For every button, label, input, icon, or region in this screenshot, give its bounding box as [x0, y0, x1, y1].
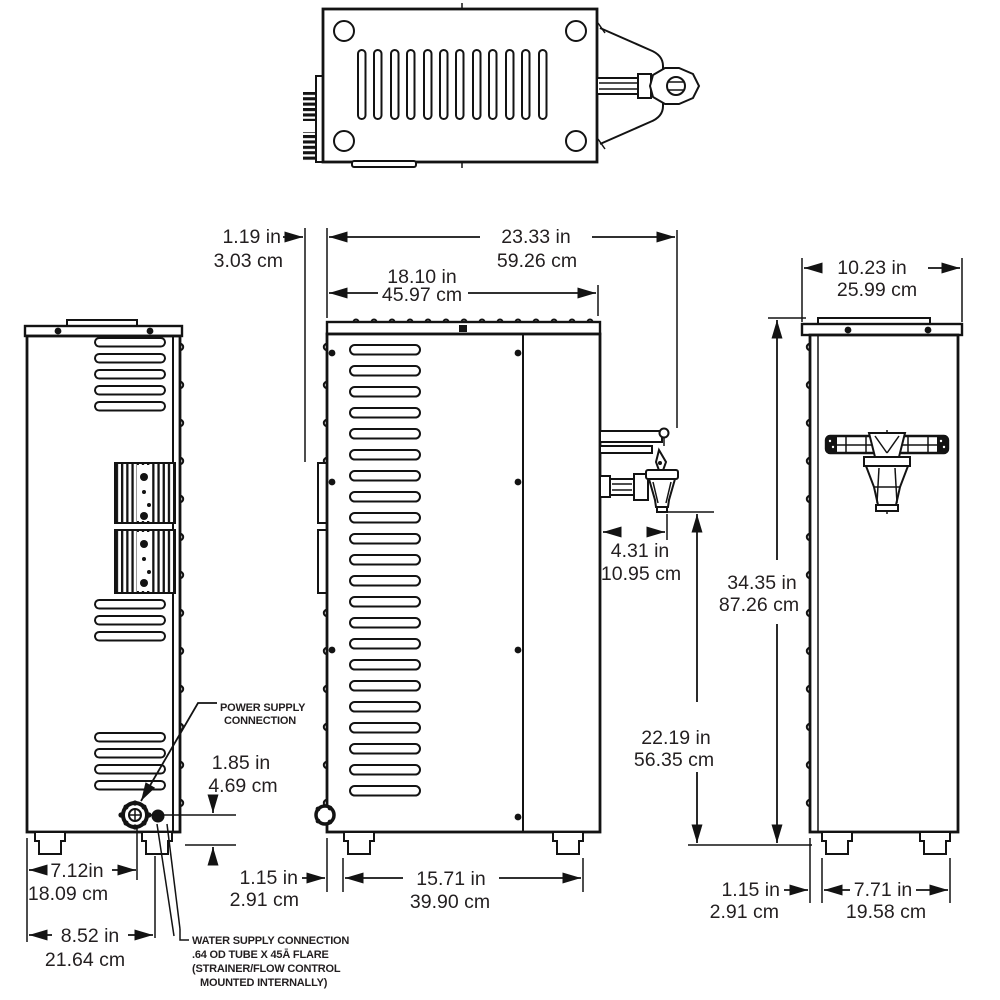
dim-power-conn-height-cm: 4.69 cm	[208, 775, 277, 797]
side-foot-right	[553, 832, 583, 854]
dim-power-conn-height-in: 1.85 in	[212, 752, 271, 774]
dim-power-conn-offset-cm: 18.09 cm	[28, 883, 108, 905]
dim-side-foot-span-in: 15.71 in	[416, 868, 485, 890]
side-view	[316, 320, 678, 855]
dim-top-inset-cm: 3.03 cm	[214, 250, 283, 272]
top-view	[303, 3, 699, 168]
rear-fins-lower	[303, 132, 317, 161]
water-leader-elbow	[180, 929, 189, 940]
water-note-line4: MOUNTED INTERNALLY)	[200, 977, 328, 989]
power-note-line1: POWER SUPPLY	[220, 702, 306, 714]
side-foot-left	[344, 832, 374, 854]
valve-body	[869, 433, 905, 457]
dim-faucet-reach-in: 4.31 in	[611, 540, 670, 562]
dim-front-width-in: 10.23 in	[837, 257, 906, 279]
dim-side-foot-span: 15.71 in 39.90 cm	[345, 868, 581, 913]
dim-side-foot-inset-in: 1.15 in	[239, 867, 298, 889]
drawing-canvas: 1.19 in 3.03 cm 23.33 in 59.26 cm 18.10 …	[0, 0, 1000, 1000]
rear-fins-upper	[303, 92, 317, 121]
dim-side-foot-span-cm: 39.90 cm	[410, 891, 490, 913]
handle-end-left	[827, 437, 837, 452]
dim-front-width: 10.23 in 25.99 cm	[804, 257, 960, 301]
dim-top-inset-in: 1.19 in	[222, 226, 281, 248]
dim-power-conn-offset-in: 7.12in	[50, 860, 103, 882]
power-note-line2: CONNECTION	[224, 715, 296, 727]
dim-overall-depth: 23.33 in 59.26 cm	[329, 226, 675, 272]
rear-view	[25, 320, 183, 854]
dim-front-foot-inset: 1.15 in 2.91 cm	[710, 879, 808, 923]
water-note-line3: (STRAINER/FLOW CONTROL	[192, 963, 341, 975]
faucet-top	[597, 68, 699, 104]
dim-spout-height-cm: 56.35 cm	[634, 749, 714, 771]
front-view	[802, 318, 962, 854]
water-note-line2: .64 OD TUBE X 45Ā FLARE	[192, 949, 329, 961]
dim-front-foot-span-cm: 19.58 cm	[846, 901, 926, 923]
dim-spout-height-in: 22.19 in	[641, 727, 710, 749]
dim-body-depth: 18.10 in 45.97 cm	[329, 266, 596, 306]
faucet-side	[600, 429, 678, 513]
dim-overall-height-cm: 87.26 cm	[719, 594, 799, 616]
dim-front-foot-inset-cm: 2.91 cm	[710, 901, 779, 923]
rear-foot-left	[35, 832, 65, 854]
dim-body-depth-cm: 45.97 cm	[382, 284, 462, 306]
dim-water-conn-offset-cm: 21.64 cm	[45, 949, 125, 971]
dim-front-foot-span-in: 7.71 in	[854, 879, 913, 901]
dim-top-inset: 1.19 in 3.03 cm	[214, 226, 303, 272]
water-supply-connector	[152, 810, 165, 823]
dim-overall-height: 34.35 in 87.26 cm	[719, 320, 799, 843]
dim-front-foot-span: 7.71 in 19.58 cm	[824, 879, 948, 923]
dim-side-foot-inset-cm: 2.91 cm	[230, 889, 299, 911]
dim-water-conn-offset: 8.52 in 21.64 cm	[29, 925, 153, 971]
dim-power-conn-height: 1.85 in 4.69 cm	[208, 752, 277, 864]
dim-overall-depth-in: 23.33 in	[501, 226, 570, 248]
power-connector-profile	[316, 806, 334, 825]
rear-foot-right	[142, 832, 172, 854]
dim-power-conn-offset: 7.12in 18.09 cm	[28, 860, 136, 905]
bottom-tab	[352, 161, 416, 167]
dim-overall-height-in: 34.35 in	[727, 572, 796, 594]
dim-faucet-reach: 4.31 in 10.95 cm	[601, 532, 681, 585]
water-note-line1: WATER SUPPLY CONNECTION	[192, 935, 349, 947]
rear-cap-band	[25, 326, 182, 336]
dim-front-foot-inset-in: 1.15 in	[721, 879, 780, 901]
dim-faucet-reach-cm: 10.95 cm	[601, 563, 681, 585]
dim-overall-depth-cm: 59.26 cm	[497, 250, 577, 272]
front-foot-left	[822, 832, 852, 854]
front-body	[810, 335, 958, 832]
handle-end-right	[937, 437, 947, 452]
dim-side-foot-inset: 1.15 in 2.91 cm	[230, 867, 325, 911]
top-view-body	[323, 9, 597, 162]
front-cap-band	[802, 324, 962, 335]
dim-front-width-cm: 25.99 cm	[837, 279, 917, 301]
dim-water-conn-offset-in: 8.52 in	[61, 925, 120, 947]
water-leader-line2	[167, 824, 180, 929]
engineering-drawing: 1.19 in 3.03 cm 23.33 in 59.26 cm 18.10 …	[0, 0, 1000, 1000]
front-foot-right	[920, 832, 950, 854]
